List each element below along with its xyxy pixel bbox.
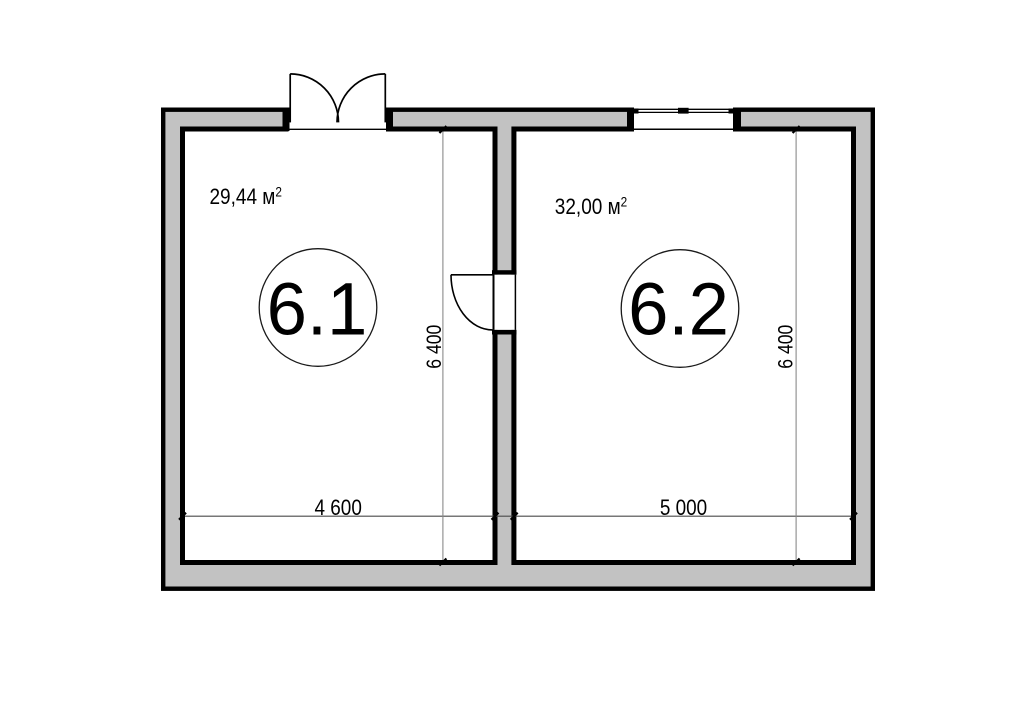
svg-text:6.2: 6.2 [628,268,729,351]
svg-text:6.1: 6.1 [267,268,368,351]
svg-text:6 400: 6 400 [422,325,446,369]
svg-text:32,00 м2: 32,00 м2 [555,194,627,220]
svg-text:6 400: 6 400 [774,325,798,369]
svg-text:5 000: 5 000 [660,496,707,521]
svg-text:4 600: 4 600 [315,496,362,521]
svg-text:29,44 м2: 29,44 м2 [210,184,282,210]
